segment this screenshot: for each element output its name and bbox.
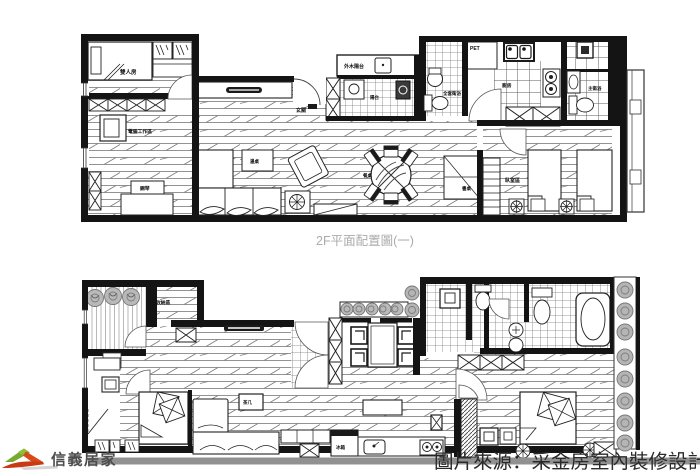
svg-text:雙人房: 雙人房	[120, 68, 137, 76]
svg-text:餐桌: 餐桌	[362, 172, 372, 179]
svg-text:外木陽台: 外木陽台	[344, 63, 364, 70]
svg-text:收納區: 收納區	[156, 299, 171, 306]
svg-text:全套衛浴: 全套衛浴	[442, 90, 461, 97]
svg-text:陽台: 陽台	[370, 94, 379, 101]
svg-text:邊桌: 邊桌	[250, 158, 259, 165]
svg-text:圖片來源：采金房室內裝修設計: 圖片來源：采金房室內裝修設計	[434, 451, 700, 472]
svg-text:玄關: 玄關	[296, 107, 306, 114]
svg-text:主衛浴: 主衛浴	[588, 85, 602, 92]
svg-text:冰箱: 冰箱	[336, 444, 345, 451]
svg-text:信義居家: 信義居家	[51, 451, 117, 469]
svg-text:鋼琴: 鋼琴	[139, 185, 150, 192]
svg-text:茶几: 茶几	[242, 399, 252, 406]
svg-text:廚房: 廚房	[502, 82, 512, 89]
svg-text:臥室區: 臥室區	[505, 177, 520, 184]
svg-text:2F平面配置圖(一): 2F平面配置圖(一)	[316, 234, 414, 248]
svg-text:PET: PET	[470, 46, 480, 52]
svg-text:書桌: 書桌	[462, 185, 471, 192]
svg-text:電腦工作區: 電腦工作區	[128, 128, 152, 135]
